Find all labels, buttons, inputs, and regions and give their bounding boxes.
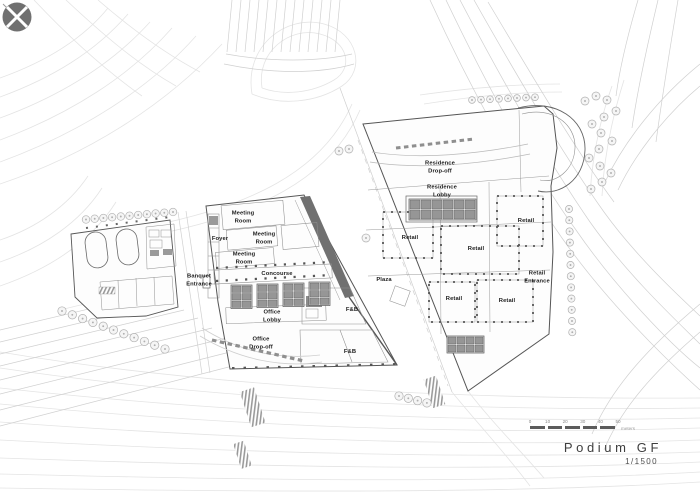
scale-tick-label: 30	[580, 419, 585, 424]
north-arrow-icon	[0, 0, 34, 34]
scale-bar-segment	[600, 426, 615, 429]
drawing-scale-label: 1/1500	[625, 457, 658, 466]
scale-tick-label: 40	[598, 419, 603, 424]
scale-bar-segment	[548, 426, 563, 429]
scale-tick-label: 20	[563, 419, 568, 424]
scale-tick-label: 10	[545, 419, 550, 424]
scale-unit-label: meters	[621, 426, 635, 431]
scale-bar-segment	[583, 426, 598, 429]
title-block: meters 01020304050 Podium GF 1/1500	[0, 0, 700, 496]
drawing-title: Podium GF	[564, 440, 662, 455]
scale-bar-segment	[530, 426, 545, 429]
floor-plan-sheet: Meeting RoomMeeting RoomFoyerMeeting Roo…	[0, 0, 700, 496]
scale-tick-label: 50	[615, 419, 620, 424]
scale-tick-label: 0	[529, 419, 532, 424]
scale-bar-segment	[565, 426, 580, 429]
scale-bar: meters 01020304050	[530, 419, 640, 433]
